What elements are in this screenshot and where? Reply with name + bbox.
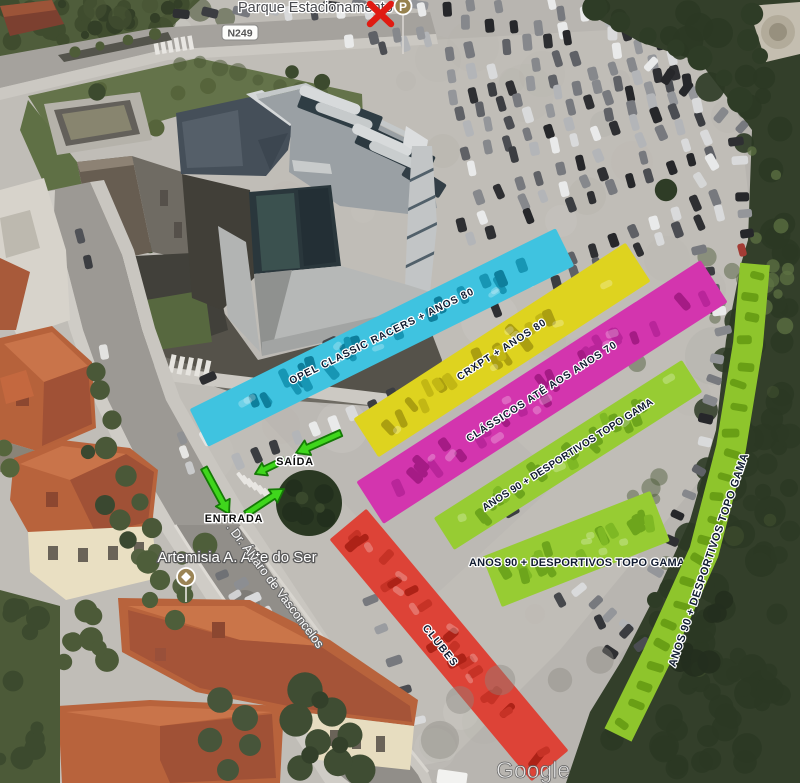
svg-text:Artemisia A. Arte do Ser: Artemisia A. Arte do Ser	[157, 549, 316, 566]
svg-text:Google: Google	[496, 757, 570, 783]
svg-text:ANOS 90 + DESPORTIVOS TOPO GAM: ANOS 90 + DESPORTIVOS TOPO GAMA	[469, 557, 685, 569]
svg-text:P: P	[399, 0, 407, 14]
svg-text:SAÍDA: SAÍDA	[276, 455, 314, 468]
svg-text:N249: N249	[227, 28, 252, 40]
